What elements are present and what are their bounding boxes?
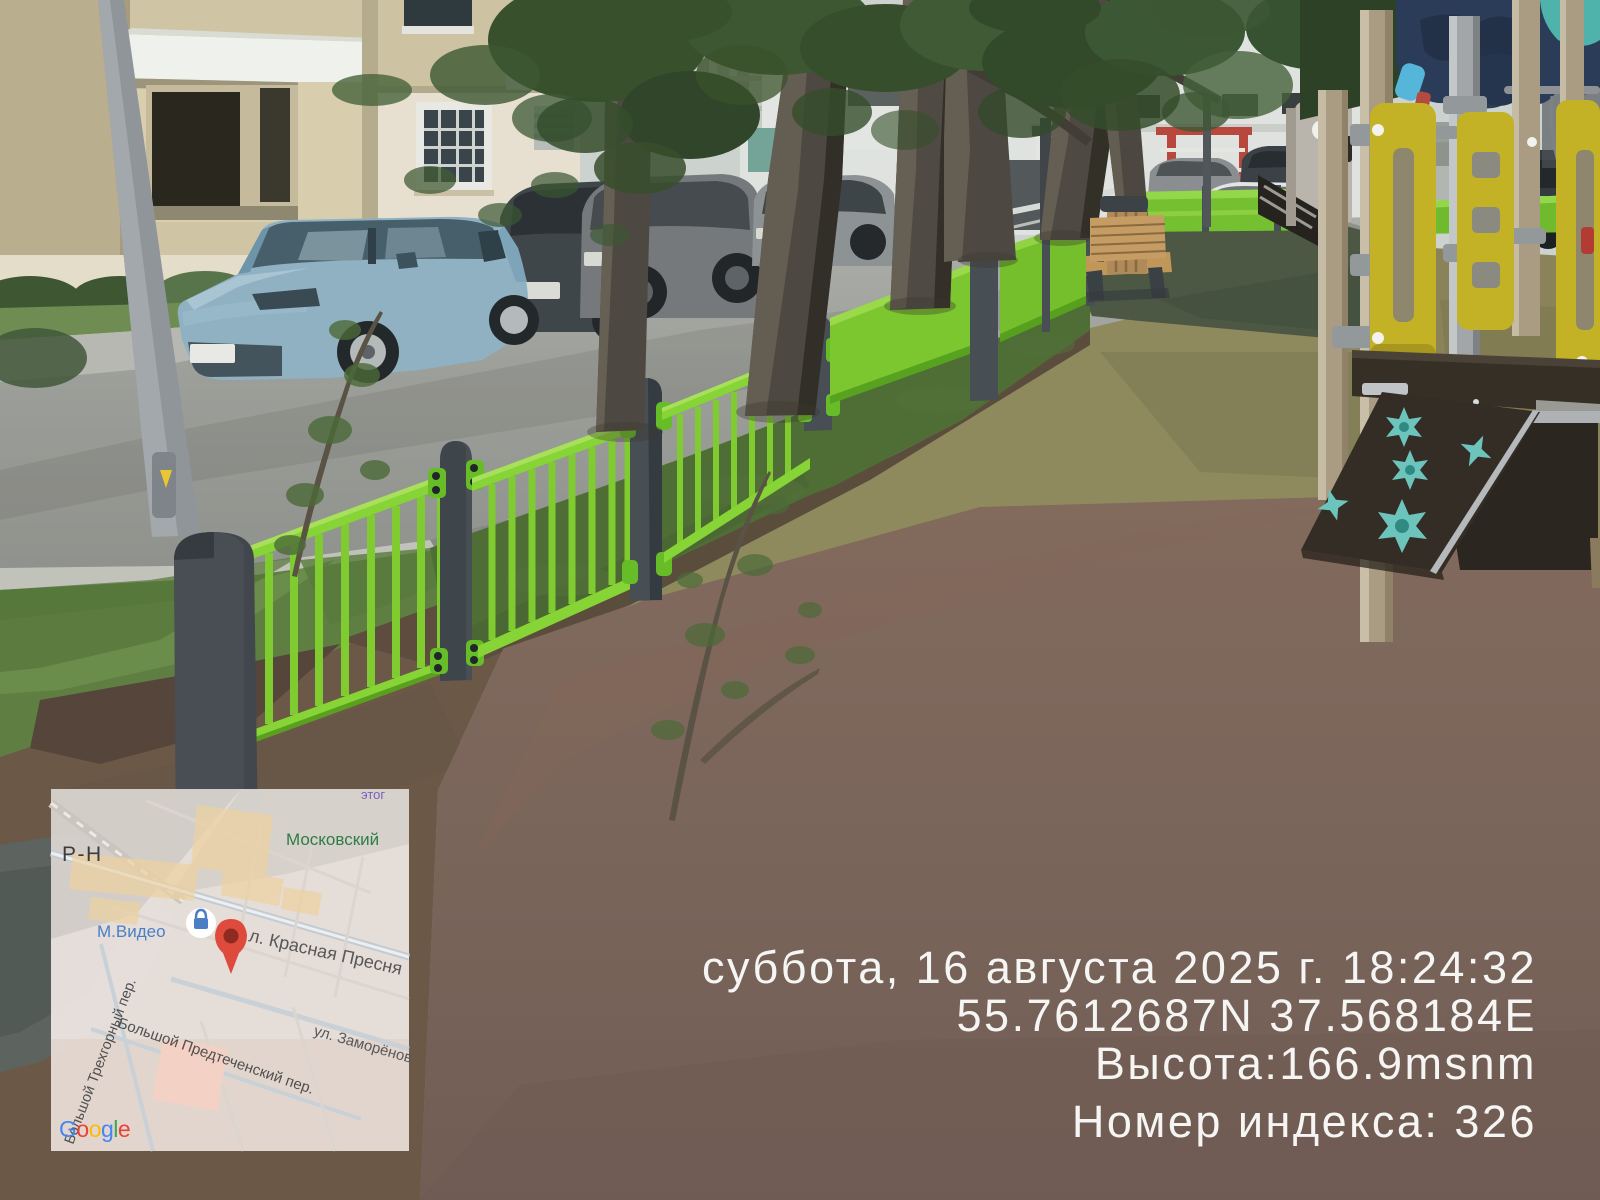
svg-text:55.7612687N 37.568184E: 55.7612687N 37.568184E: [957, 990, 1537, 1041]
svg-text:Московский: Московский: [286, 830, 379, 849]
svg-text:Высота:166.9msnm: Высота:166.9msnm: [1095, 1038, 1537, 1089]
svg-text:Р-Н: Р-Н: [62, 843, 103, 866]
svg-text:суббота, 16 августа 2025 г. 18: суббота, 16 августа 2025 г. 18:24:32: [702, 942, 1537, 993]
svg-text:Номер индекса: 326: Номер индекса: 326: [1072, 1096, 1537, 1147]
svg-text:Google: Google: [59, 1116, 130, 1142]
svg-text:М.Видео: М.Видео: [97, 922, 166, 941]
svg-text:этог: этог: [361, 787, 385, 802]
